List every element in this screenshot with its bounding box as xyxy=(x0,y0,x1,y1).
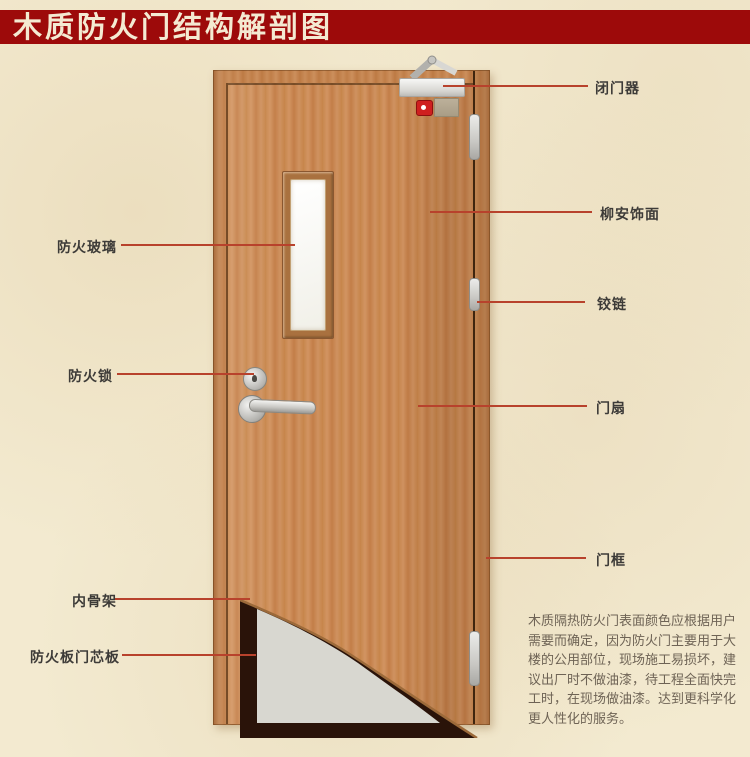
leader-line-door-closer xyxy=(443,85,588,87)
leader-line-inner-frame xyxy=(114,598,250,600)
leader-line-veneer xyxy=(430,211,592,213)
hinge-middle xyxy=(469,278,480,311)
hinge-bottom xyxy=(469,631,480,686)
glass-window-frame xyxy=(282,171,334,339)
fire-glass-pane xyxy=(290,179,326,331)
fire-rating-emblem xyxy=(416,100,433,116)
leader-line-hinge xyxy=(477,301,585,303)
core-board-panel xyxy=(257,609,440,723)
leader-line-door-frame xyxy=(486,557,586,559)
label-fire-lock: 防火锁 xyxy=(68,366,113,386)
leader-line-core-board xyxy=(122,654,256,656)
door-frame xyxy=(213,70,490,725)
leader-line-fire-glass xyxy=(121,244,295,246)
label-door-frame: 门框 xyxy=(596,550,626,570)
label-door-closer: 闭门器 xyxy=(595,78,640,98)
page-title: 木质防火门结构解剖图 xyxy=(0,10,750,44)
leader-line-fire-lock xyxy=(117,373,254,375)
title-banner: 木质防火门结构解剖图 xyxy=(0,10,750,44)
certification-plate xyxy=(434,98,459,117)
description-text: 木质隔热防火门表面颜色应根据用户需要而确定，因为防火门主要用于大楼的公用部位，现… xyxy=(528,612,740,729)
hinge-top xyxy=(469,114,480,160)
label-door-leaf: 门扇 xyxy=(596,398,626,418)
label-inner-frame: 内骨架 xyxy=(72,591,117,611)
leader-line-door-leaf xyxy=(418,405,587,407)
diagram-canvas: 木质防火门结构解剖图 xyxy=(0,0,750,757)
door-closer-body xyxy=(399,78,465,97)
label-veneer: 柳安饰面 xyxy=(600,204,660,224)
label-fire-glass: 防火玻璃 xyxy=(57,237,117,257)
label-hinge: 铰链 xyxy=(597,294,627,314)
cutaway-section xyxy=(240,593,488,738)
fire-lock-cylinder xyxy=(243,367,267,391)
label-core-board: 防火板门芯板 xyxy=(30,647,120,667)
door-gap-line xyxy=(473,71,475,724)
